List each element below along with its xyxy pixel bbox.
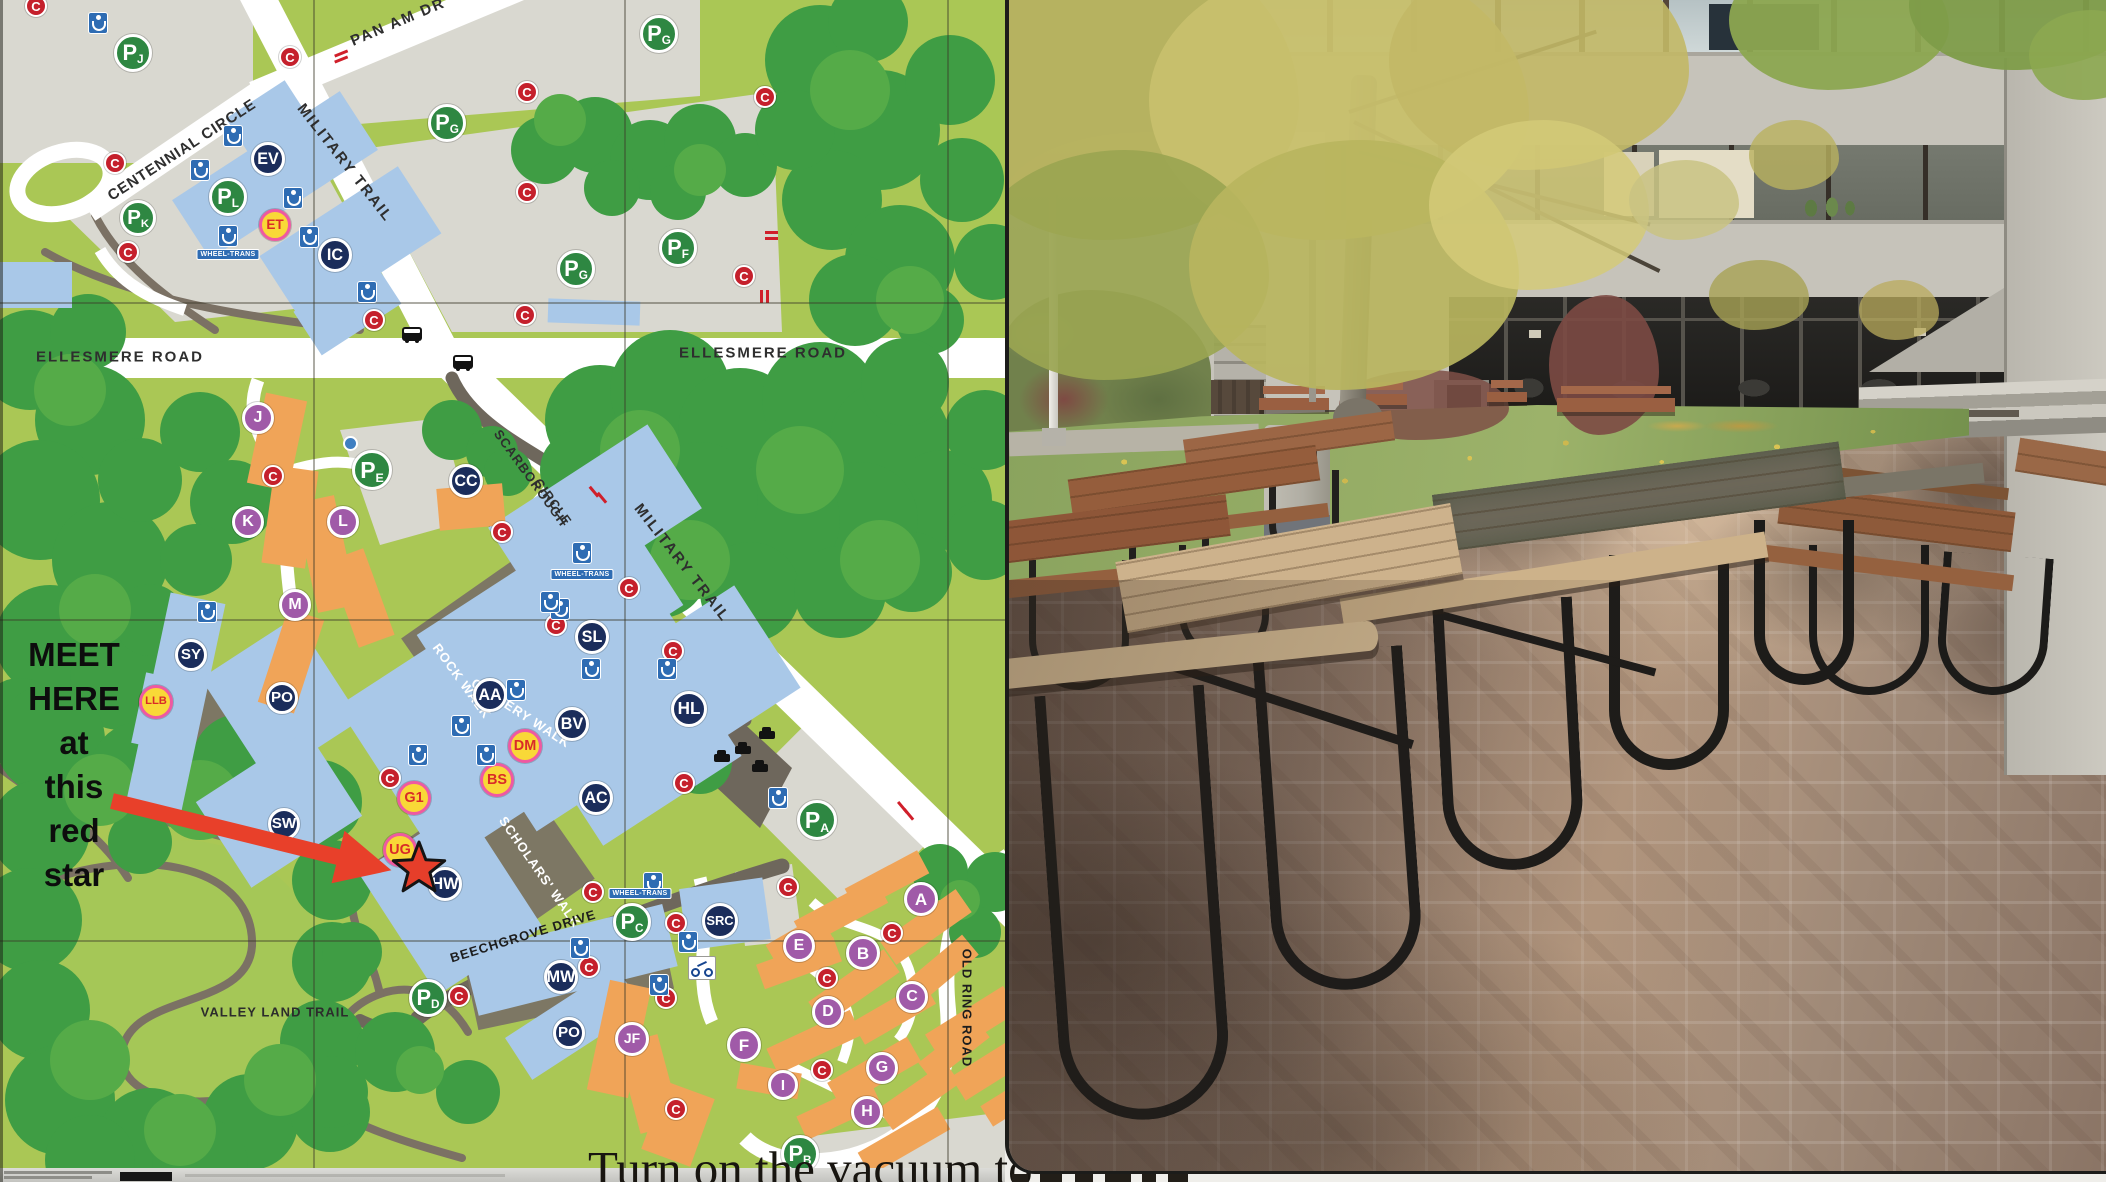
parking-sub-letter: J	[137, 54, 144, 66]
parking-sub-letter: F	[682, 249, 689, 261]
accessibility-icon	[197, 601, 217, 623]
note-line: red	[12, 809, 136, 853]
building-marker-po: PO	[266, 682, 298, 714]
credits-logo	[120, 1172, 172, 1181]
parking-letter: P	[360, 459, 375, 482]
landmark-marker-llb: LLB	[139, 685, 173, 719]
accessibility-icon	[506, 679, 526, 701]
residence-marker-j: J	[242, 402, 274, 434]
parking-letter: P	[416, 987, 431, 1009]
residence-marker-h: H	[851, 1096, 883, 1128]
landmark-marker-et: ET	[259, 209, 291, 241]
accessibility-icon	[649, 974, 669, 996]
leaf-cluster	[1749, 120, 1839, 190]
red-c-marker: C	[514, 304, 536, 326]
page: PAN AM DRCENTENNIAL CIRCLEMILITARY TRAIL…	[0, 0, 2106, 1182]
residence-marker-f: F	[727, 1028, 761, 1062]
parking-letter: P	[122, 42, 137, 64]
tree-canopy	[1429, 120, 1649, 290]
accessibility-icon	[451, 715, 471, 737]
red-c-marker: C	[379, 767, 401, 789]
caption-clipped-glyphs	[1075, 1174, 1093, 1182]
credits-text-line	[4, 1176, 92, 1179]
red-c-marker: C	[448, 985, 470, 1007]
building-marker-src: SRC	[702, 903, 738, 939]
leaf-cluster	[1629, 160, 1739, 240]
parking-letter: P	[564, 258, 579, 280]
building-marker-ic: IC	[318, 238, 352, 272]
landmark-marker-dm: DM	[508, 729, 542, 763]
car-icon	[752, 764, 768, 772]
accessibility-icon	[190, 159, 210, 181]
map-left-edge	[0, 0, 3, 1182]
map-markers: EVICCCSLAABVHLACHWSYPOSWMWPOSRCJKLMABCDE…	[0, 0, 1005, 1182]
red-c-marker: C	[665, 1098, 687, 1120]
accessibility-icon	[283, 187, 303, 209]
bus-icon	[453, 355, 473, 369]
red-c-marker: C	[262, 465, 284, 487]
accessibility-icon	[581, 658, 601, 680]
building-marker-cc: CC	[449, 464, 483, 498]
wheel-trans-badge: WHEEL-TRANS	[608, 888, 671, 899]
leaf-cluster	[1709, 260, 1809, 330]
parking-marker-j: PJ	[114, 34, 152, 72]
landmark-marker-ug: UG	[383, 833, 417, 867]
parking-sub-letter: G	[662, 35, 671, 47]
residence-marker-m: M	[279, 589, 311, 621]
red-c-marker: C	[816, 967, 838, 989]
caption-clipped-glyphs	[1012, 1174, 1028, 1182]
red-c-marker: C	[104, 152, 126, 174]
caption-clipped-glyphs	[1168, 1174, 1188, 1182]
parking-letter: P	[667, 237, 682, 259]
note-line: at	[12, 721, 136, 765]
building-marker-sw: SW	[268, 808, 300, 840]
campus-map: PAN AM DRCENTENNIAL CIRCLEMILITARY TRAIL…	[0, 0, 1005, 1182]
parking-marker-l: PL	[209, 178, 247, 216]
accessibility-icon	[540, 591, 560, 613]
red-c-marker: C	[733, 265, 755, 287]
courtyard-photo	[1005, 0, 2106, 1174]
caption-clipped-glyphs	[1105, 1174, 1131, 1182]
red-c-marker: C	[673, 772, 695, 794]
building-marker-mw: MW	[544, 960, 578, 994]
bench	[1557, 398, 1675, 412]
red-c-marker: C	[618, 577, 640, 599]
building-marker-hl: HL	[671, 691, 707, 727]
red-c-marker: C	[582, 881, 604, 903]
residence-marker-i: I	[768, 1070, 798, 1100]
accessibility-icon	[678, 931, 698, 953]
car-icon	[735, 746, 751, 754]
accessibility-icon	[657, 658, 677, 680]
residence-marker-g: G	[866, 1052, 898, 1084]
parking-marker-d: PD	[409, 979, 447, 1017]
parking-marker-a: PA	[797, 800, 837, 840]
parking-sub-letter: C	[635, 923, 644, 935]
parking-letter: P	[647, 23, 662, 45]
red-c-marker: C	[777, 876, 799, 898]
red-c-marker: C	[578, 956, 600, 978]
building-marker-sy: SY	[175, 639, 207, 671]
windowsill-plants	[1799, 195, 1859, 217]
accessibility-icon	[88, 12, 108, 34]
residence-marker-l: L	[327, 506, 359, 538]
accessibility-icon	[768, 787, 788, 809]
parking-marker-g: PG	[428, 104, 466, 142]
table-leg	[1432, 597, 1586, 874]
door-sign	[1529, 330, 1541, 338]
leaf-cluster	[1859, 280, 1939, 340]
car-icon	[759, 731, 775, 739]
bench	[1487, 392, 1527, 402]
bus-icon	[402, 327, 422, 341]
pole-base	[1042, 428, 1066, 446]
bench	[1259, 398, 1329, 410]
building-marker-sl: SL	[575, 620, 609, 654]
parking-letter: P	[127, 208, 141, 229]
building-marker-po: PO	[553, 1017, 585, 1049]
red-c-marker: C	[363, 309, 385, 331]
parking-letter: P	[805, 809, 820, 832]
accessibility-icon	[476, 744, 496, 766]
red-c-marker: C	[279, 46, 301, 68]
residence-marker-a: A	[904, 882, 938, 916]
wheel-trans-badge: WHEEL-TRANS	[550, 569, 613, 580]
caption-clipped-glyphs	[1142, 1174, 1156, 1182]
parking-sub-letter: E	[376, 472, 384, 484]
red-c-marker: C	[516, 181, 538, 203]
accessibility-icon	[299, 226, 319, 248]
parking-sub-letter: G	[579, 270, 588, 282]
red-c-marker: C	[491, 521, 513, 543]
accessibility-icon	[572, 542, 592, 564]
landmark-marker-bs: BS	[480, 763, 514, 797]
red-c-marker: C	[811, 1059, 833, 1081]
residence-marker-d: D	[812, 996, 844, 1028]
parking-sub-letter: G	[450, 124, 459, 136]
building-marker-aa: AA	[473, 678, 507, 712]
building-marker-ev: EV	[251, 142, 285, 176]
note-line: this	[12, 765, 136, 809]
parking-letter: P	[620, 911, 635, 933]
maroon-shrub	[1549, 295, 1659, 435]
parking-marker-g: PG	[640, 15, 678, 53]
accessibility-icon	[408, 744, 428, 766]
accessibility-icon	[218, 225, 238, 247]
table-leg	[1034, 685, 1234, 1126]
credits-text-line	[4, 1171, 112, 1174]
building-marker-ac: AC	[579, 781, 613, 815]
red-c-marker: C	[516, 81, 538, 103]
parking-letter: P	[435, 112, 450, 134]
info-dot	[343, 436, 358, 451]
bottom-caption: Turn on the vacuum to	[588, 1140, 1033, 1182]
accessibility-icon	[357, 281, 377, 303]
red-c-marker: C	[881, 922, 903, 944]
residence-marker-c: C	[896, 981, 928, 1013]
parking-sub-letter: A	[820, 822, 829, 834]
residence-marker-k: K	[232, 506, 264, 538]
residence-marker-b: B	[846, 936, 880, 970]
red-c-marker: C	[754, 86, 776, 108]
note-line: MEET	[12, 633, 136, 677]
accessibility-icon	[223, 125, 243, 147]
parking-letter: P	[217, 186, 232, 208]
parking-marker-f: PF	[659, 229, 697, 267]
parking-marker-g: PG	[557, 250, 595, 288]
red-c-marker: C	[117, 241, 139, 263]
parking-sub-letter: L	[232, 198, 239, 210]
table-leg	[1754, 520, 1854, 685]
note-line: HERE	[12, 677, 136, 721]
parking-marker-c: PC	[613, 903, 651, 941]
wheel-trans-badge: WHEEL-TRANS	[196, 249, 259, 260]
parking-marker-e: PE	[352, 450, 392, 490]
caption-clipped-glyphs	[1040, 1174, 1062, 1182]
credits-text-line	[185, 1174, 505, 1177]
residence-marker-e: E	[783, 930, 815, 962]
car-icon	[714, 754, 730, 762]
landmark-marker-g1: G1	[397, 781, 431, 815]
bicycle-icon	[688, 956, 716, 980]
parking-sub-letter: D	[431, 999, 440, 1011]
fallen-leaves-pile	[1629, 418, 1789, 434]
building-marker-hw: HW	[428, 867, 462, 901]
meet-here-note: MEETHEREatthisredstar	[12, 633, 136, 897]
residence-marker-jf: JF	[615, 1022, 649, 1056]
parking-sub-letter: K	[141, 219, 149, 230]
parking-marker-k: PK	[120, 200, 156, 236]
building-marker-bv: BV	[555, 707, 589, 741]
note-line: star	[12, 853, 136, 897]
accessibility-icon	[570, 937, 590, 959]
red-c-marker: C	[25, 0, 47, 17]
